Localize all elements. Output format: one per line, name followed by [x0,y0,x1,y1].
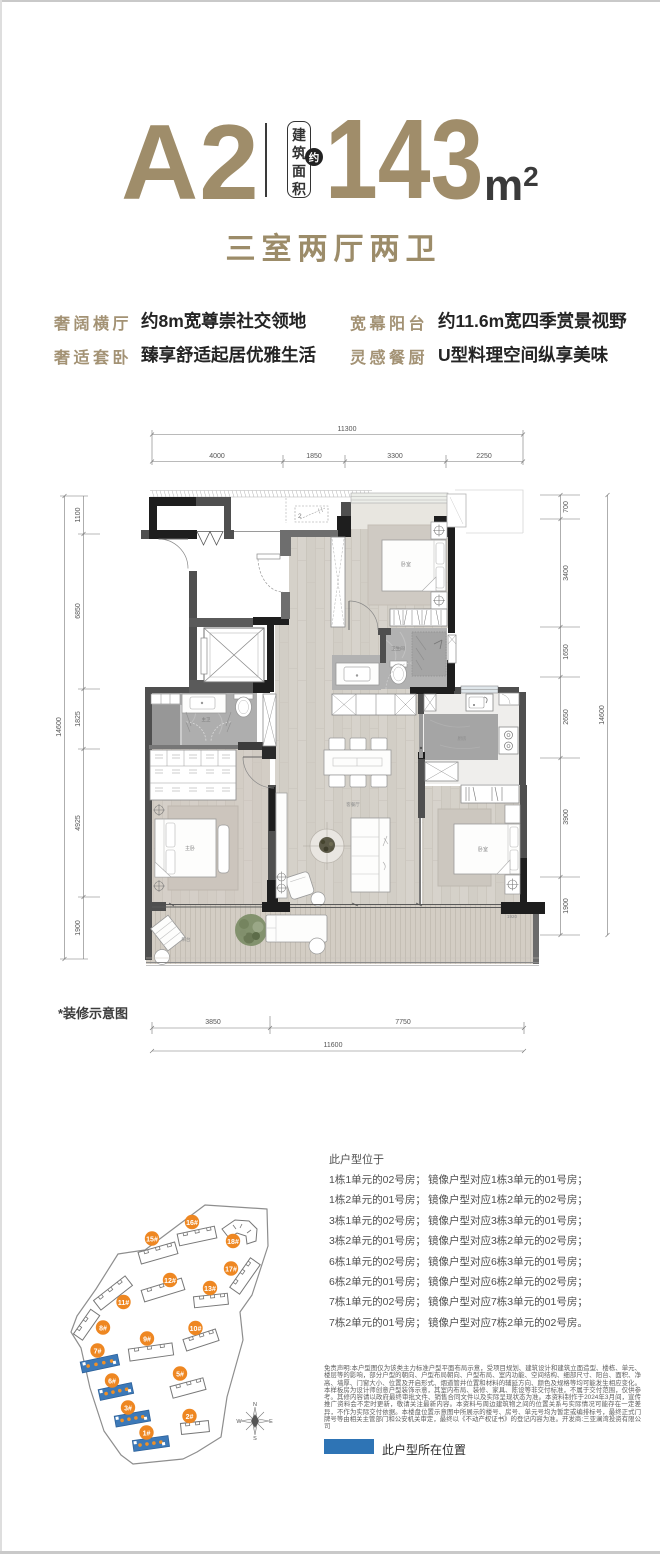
svg-text:5#: 5# [176,1372,184,1379]
svg-text:8#: 8# [99,1326,107,1333]
svg-text:阳台: 阳台 [182,936,191,943]
svg-text:客餐厅: 客餐厅 [346,801,360,808]
svg-text:1920: 1920 [507,914,518,919]
svg-text:1825: 1825 [75,711,82,727]
svg-text:3#: 3# [124,1406,132,1413]
svg-text:卧室: 卧室 [401,561,411,568]
svg-text:11600: 11600 [324,1042,343,1049]
svg-text:4000: 4000 [209,453,225,460]
svg-text:E: E [269,1419,273,1425]
svg-text:15#: 15# [146,1237,158,1244]
svg-text:6#: 6# [108,1379,116,1386]
svg-text:3400: 3400 [563,565,570,581]
svg-text:N: N [253,1402,257,1408]
svg-text:1100: 1100 [75,507,82,522]
svg-text:1900: 1900 [563,898,570,914]
svg-text:3900: 3900 [563,809,570,825]
svg-text:S: S [253,1436,257,1442]
svg-text:1#: 1# [143,1431,151,1438]
svg-text:7750: 7750 [395,1019,411,1026]
svg-text:12#: 12# [164,1278,176,1285]
svg-text:4925: 4925 [75,815,82,831]
svg-text:16#: 16# [186,1220,198,1227]
svg-text:11#: 11# [118,1300,129,1307]
svg-text:主卫: 主卫 [202,716,211,722]
svg-text:14600: 14600 [56,717,63,737]
svg-text:1650: 1650 [563,644,570,660]
svg-text:3300: 3300 [387,453,403,460]
svg-text:700: 700 [563,501,570,513]
svg-text:14600: 14600 [599,705,606,725]
svg-text:7#: 7# [94,1349,102,1356]
svg-text:13#: 13# [204,1286,216,1293]
svg-text:2650: 2650 [563,709,570,725]
svg-text:18#: 18# [227,1239,239,1246]
svg-text:卧室: 卧室 [478,846,488,853]
svg-text:6850: 6850 [75,603,82,619]
svg-text:2250: 2250 [476,453,492,460]
svg-text:2#: 2# [186,1414,194,1421]
svg-text:W: W [236,1419,242,1425]
svg-text:9#: 9# [143,1337,151,1344]
svg-text:1900: 1900 [75,920,82,936]
svg-text:主卧: 主卧 [185,845,195,852]
svg-text:1850: 1850 [306,453,322,460]
svg-text:厨房: 厨房 [458,735,467,742]
svg-text:17#: 17# [225,1267,237,1274]
svg-text:卫生间: 卫生间 [391,645,405,652]
svg-text:11300: 11300 [338,426,357,433]
svg-text:3850: 3850 [205,1019,221,1026]
svg-text:10#: 10# [190,1326,202,1333]
